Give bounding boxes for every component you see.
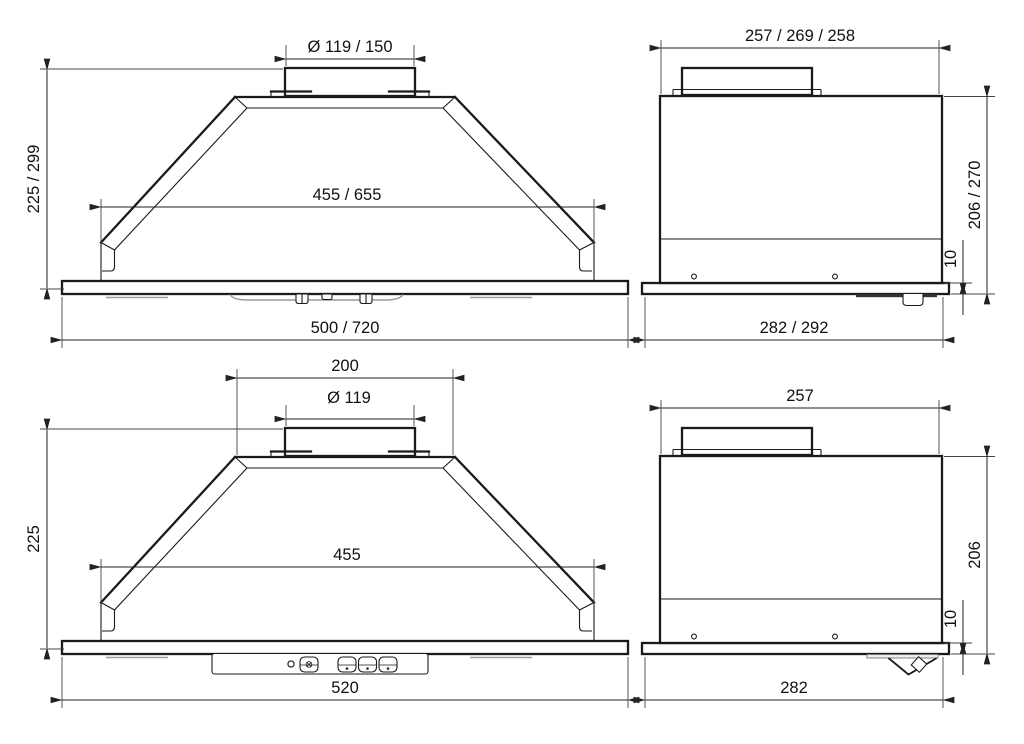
- dim-duct-diameter-label: Ø 119 / 150: [307, 38, 392, 56]
- dim-height-label: 206 / 270: [966, 161, 984, 230]
- speed-button-1: [338, 657, 356, 672]
- dim-height-label: 225: [25, 525, 43, 553]
- side-view-large: 257 / 269 / 258 206 / 270 10 282 / 292: [642, 27, 995, 348]
- control-panel: [212, 654, 428, 675]
- dim-overall-depth-label: 282: [780, 679, 808, 697]
- dim-plate-thickness-label: 10: [942, 610, 960, 628]
- dim-top-depth-label: 257 / 269 / 258: [745, 27, 855, 45]
- speed-1-mark: [346, 667, 349, 670]
- dim-overall-width-label: 500 / 720: [311, 319, 380, 337]
- dim-top-depth-label: 257: [786, 387, 814, 405]
- outlet-flap: [867, 655, 938, 675]
- light-button: [300, 657, 318, 672]
- dim-inner-width-label: 455: [333, 546, 361, 564]
- dim-duct-diameter-label: Ø 119: [327, 389, 371, 407]
- led-indicator: [288, 661, 294, 667]
- speed-button-3: [379, 657, 397, 672]
- dim-top-width-label: 200: [331, 357, 359, 375]
- dim-overall-width-label: 520: [331, 679, 359, 697]
- center-tab: [322, 295, 332, 300]
- underside-details: [230, 295, 403, 304]
- dim-height-label: 206: [966, 541, 984, 569]
- dim-plate-thickness-label: 10: [942, 250, 960, 268]
- speed-3-mark: [387, 667, 390, 670]
- outlet-slot: [867, 655, 938, 659]
- speed-button-2: [359, 657, 377, 672]
- valve-knob: [903, 294, 923, 306]
- gasket-strip: [856, 294, 937, 297]
- side-view-small: 257 206 10 282: [642, 387, 995, 708]
- dim-height-label: 225 / 299: [25, 145, 43, 214]
- hood-dimension-drawing: Ø 119 / 150 225 / 299 455 / 655 500 / 72…: [0, 0, 1024, 744]
- dim-inner-width-label: 455 / 655: [313, 186, 382, 204]
- speed-2-mark: [366, 667, 369, 670]
- dim-overall-depth-label: 282 / 292: [760, 319, 829, 337]
- damper-flap: [911, 657, 927, 673]
- front-view-large: Ø 119 / 150 225 / 299 455 / 655 500 / 72…: [25, 38, 628, 348]
- technical-drawing-page: Ø 119 / 150 225 / 299 455 / 655 500 / 72…: [0, 0, 1024, 744]
- front-view-small: 200 Ø 119 225 455 520: [25, 357, 628, 708]
